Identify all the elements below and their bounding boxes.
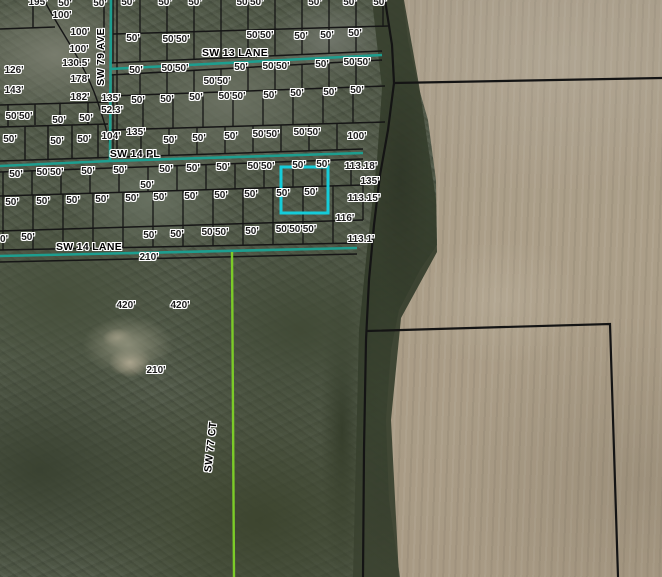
distance-label: 50'50': [161, 64, 188, 74]
distance-label: 135': [126, 128, 145, 138]
distance-label: 100': [347, 132, 366, 142]
distance-label: 50': [320, 31, 334, 41]
distance-label: 50': [131, 96, 145, 106]
distance-label: 50': [140, 181, 154, 191]
distance-label: 50'50': [236, 0, 263, 8]
distance-label: 143': [4, 86, 23, 96]
distance-label: 50': [113, 166, 127, 176]
distance-label: 50': [126, 34, 140, 44]
distance-label: 50': [9, 170, 23, 180]
distance-label: 50': [186, 164, 200, 174]
distance-label: 50': [294, 32, 308, 42]
distance-label: 420': [170, 301, 189, 311]
distance-label: 50': [323, 88, 337, 98]
distance-label: 50'50': [247, 162, 274, 172]
distance-label: 135': [101, 94, 120, 104]
distance-label: 135': [360, 177, 379, 187]
street-name-label: SW 14 PL: [110, 149, 160, 160]
distance-label: 50': [95, 195, 109, 205]
distance-label: 50': [234, 63, 248, 73]
street-name-label: SW 77 CT: [203, 421, 219, 473]
distance-label: 50': [343, 0, 357, 8]
distance-label: 50': [224, 132, 238, 142]
distance-label: 50': [77, 135, 91, 145]
distance-label: 50'50': [252, 130, 279, 140]
distance-label: 50': [93, 0, 107, 9]
distance-label: 50'50': [5, 112, 32, 122]
street-name-label: SW 13 LANE: [202, 48, 268, 59]
distance-label: 50': [50, 137, 64, 147]
distance-label: 50': [159, 165, 173, 175]
distance-label: 50': [121, 0, 135, 8]
distance-label: 50': [170, 230, 184, 240]
distance-label: 100': [52, 11, 71, 21]
distance-label: 50'50'50': [276, 225, 317, 235]
parcel-map[interactable]: 195'50'50'50'50'50'50'50'50'50'50'100'10…: [0, 0, 662, 577]
distance-label: 50': [214, 191, 228, 201]
distance-label: 50': [244, 190, 258, 200]
distance-label: 50': [158, 0, 172, 8]
distance-label: 0': [0, 235, 8, 245]
distance-label: 50': [316, 160, 330, 170]
distance-label: 50': [308, 0, 322, 8]
distance-label: 50': [143, 231, 157, 241]
distance-label: 50': [21, 233, 35, 243]
distance-label: 195': [28, 0, 47, 8]
distance-label: 100': [69, 45, 88, 55]
distance-label: 50': [245, 227, 259, 237]
distance-label: 50': [52, 116, 66, 126]
distance-label: 50': [66, 196, 80, 206]
distance-label: 116': [336, 214, 355, 224]
distance-label: 50': [163, 136, 177, 146]
distance-label: 50'50': [203, 77, 230, 87]
street-name-label: SW 14 LANE: [56, 242, 122, 253]
distance-label: 182': [70, 93, 89, 103]
distance-label: 50'50': [218, 92, 245, 102]
distance-label: 50': [160, 95, 174, 105]
distance-label: 50'50': [201, 228, 228, 238]
distance-label: 50': [189, 93, 203, 103]
distance-label: 50'50': [293, 128, 320, 138]
distance-label: 420': [116, 301, 135, 311]
distance-label: 52.3': [101, 106, 123, 116]
distance-label: 50': [304, 188, 318, 198]
distance-label: 50': [125, 194, 139, 204]
distance-label: 50': [192, 134, 206, 144]
distance-label: 50': [290, 89, 304, 99]
distance-label: 126': [4, 66, 23, 76]
distance-label: 50': [58, 0, 72, 9]
distance-label: 50': [129, 66, 143, 76]
distance-label: 50': [348, 29, 362, 39]
distance-label: 50': [216, 163, 230, 173]
distance-label: 50': [81, 167, 95, 177]
distance-label: 210': [146, 366, 165, 376]
distance-label: 50': [5, 198, 19, 208]
distance-label: 178': [70, 75, 89, 85]
distance-label: 50': [188, 0, 202, 8]
distance-label: 50': [153, 193, 167, 203]
distance-label: 50': [3, 135, 17, 145]
distance-label: 50': [263, 91, 277, 101]
distance-label: 113.18': [345, 162, 377, 172]
distance-label: 50'50': [262, 62, 289, 72]
distance-label: 50': [79, 114, 93, 124]
distance-label: 104': [101, 132, 120, 142]
distance-label: 100': [70, 28, 89, 38]
distance-label: 50': [373, 0, 387, 8]
distance-label: 50'50': [246, 31, 273, 41]
distance-label: 50': [36, 197, 50, 207]
distance-label: 50'50': [36, 168, 63, 178]
street-name-label: SW 79 AVE: [96, 28, 107, 86]
map-labels: 195'50'50'50'50'50'50'50'50'50'50'100'10…: [0, 0, 662, 577]
distance-label: 50'50': [162, 35, 189, 45]
distance-label: 113.1': [348, 235, 375, 245]
distance-label: 113.15': [348, 194, 380, 204]
distance-label: 50': [184, 192, 198, 202]
distance-label: 50'50': [343, 58, 370, 68]
distance-label: 50': [350, 86, 364, 96]
distance-label: 50': [315, 60, 329, 70]
distance-label: 50': [276, 189, 290, 199]
distance-label: 210': [139, 253, 158, 263]
distance-label: 50': [292, 161, 306, 171]
distance-label: 130.5': [62, 59, 89, 69]
